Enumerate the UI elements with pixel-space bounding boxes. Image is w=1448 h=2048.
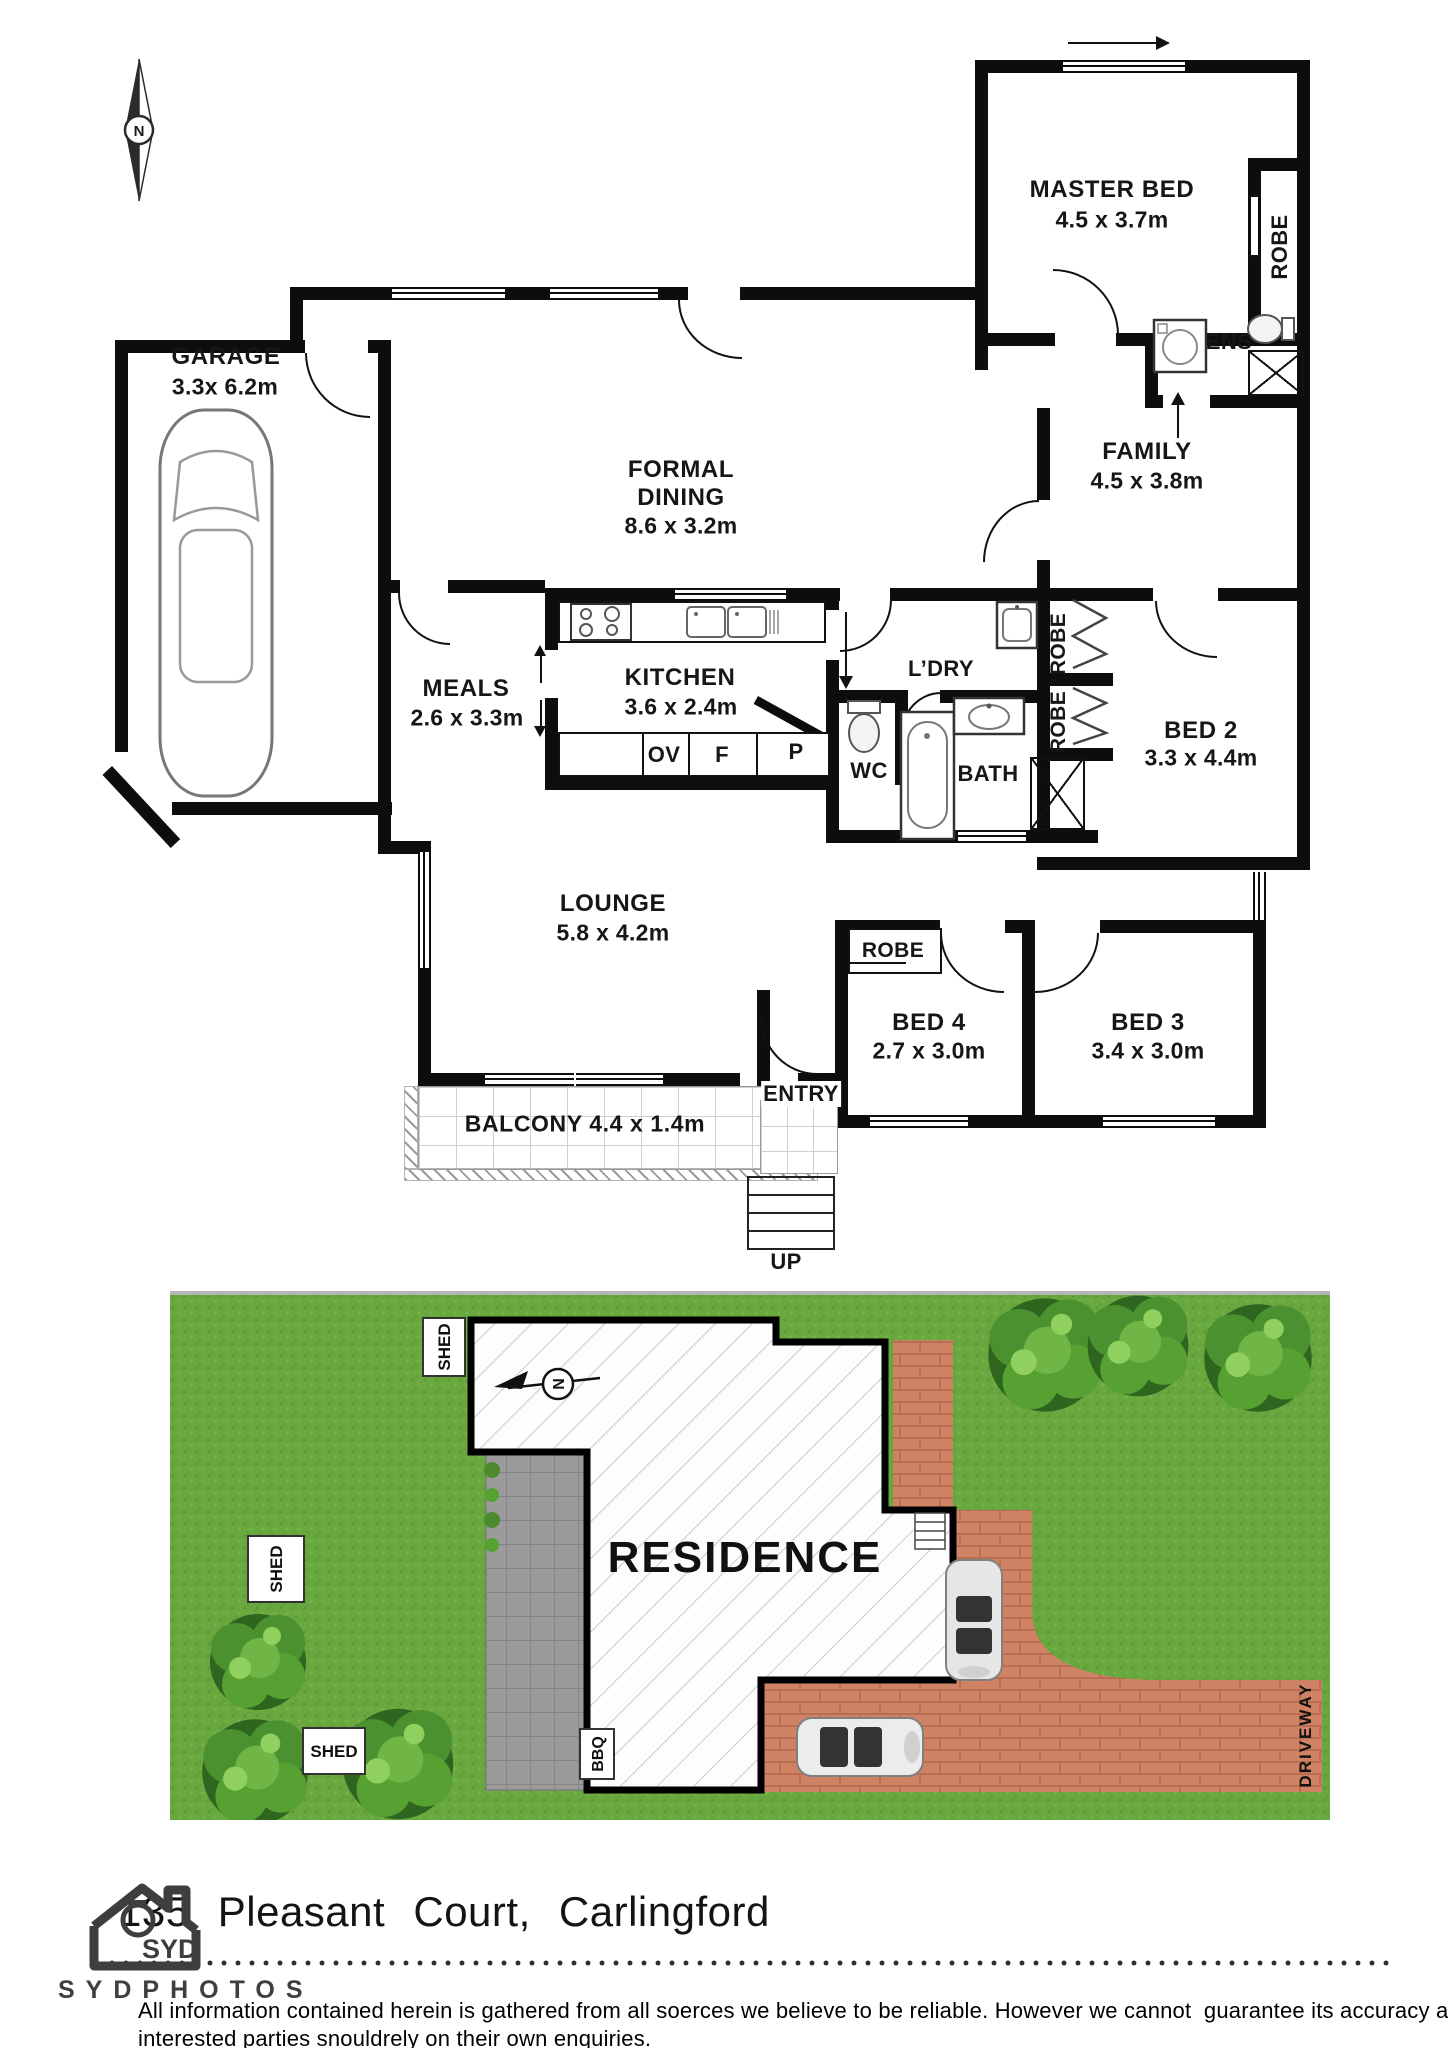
room-dims-master-bed: 4.5 x 3.7m (1056, 207, 1169, 234)
window (392, 287, 505, 300)
robe-rail-icon (1070, 686, 1112, 746)
room-label-balcony: BALCONY 4.4 x 1.4m (465, 1111, 705, 1138)
bbq-label: BBQ (590, 1736, 607, 1772)
wall (1253, 920, 1266, 1128)
wall (835, 1115, 870, 1128)
room-label-bed4: BED 4 (892, 1009, 966, 1037)
bench-divider (756, 732, 758, 777)
door-arc (840, 600, 892, 652)
room-dims-family: 4.5 x 3.8m (1091, 468, 1204, 495)
arrow-up-icon (534, 645, 546, 656)
residence-label: RESIDENCE (608, 1533, 883, 1582)
wall (1100, 920, 1253, 933)
wall (545, 588, 675, 601)
tree (210, 1614, 306, 1710)
wall (1037, 857, 1310, 870)
shed-bottom-label: SHED (310, 1742, 357, 1761)
label-robe-bed4: ROBE (862, 939, 924, 963)
bush (484, 1462, 500, 1478)
room-dims-meals: 2.6 x 3.3m (411, 705, 524, 732)
sydphotos-logo-icon: SYD (80, 1874, 240, 1974)
wall (448, 580, 545, 593)
wall (418, 841, 431, 852)
wall (1218, 588, 1310, 601)
tree (988, 1298, 1101, 1411)
robe-rail-icon (1070, 598, 1112, 670)
label-robe-upper: ROBE (1047, 613, 1071, 675)
label-entry: ENTRY (761, 1081, 841, 1107)
balcony-edge-hatch (404, 1086, 418, 1170)
wall (1183, 60, 1310, 73)
shed-left-label: SHED (267, 1545, 286, 1592)
wall (968, 1115, 1103, 1128)
oven-label: OV (648, 742, 681, 768)
floorplan-page: N (0, 0, 1448, 2048)
window (576, 1073, 663, 1086)
door-arc (398, 593, 450, 645)
label-bath: BATH (957, 761, 1018, 787)
window (418, 852, 431, 968)
tree (1204, 1304, 1312, 1412)
label-ldry: L’DRY (908, 656, 974, 682)
wall (115, 340, 128, 752)
wall (975, 60, 1070, 73)
wall (1022, 920, 1035, 1128)
shower-icon (1152, 318, 1208, 374)
door-arc (983, 500, 1039, 562)
wall (663, 1073, 740, 1086)
room-dims-kitchen: 3.6 x 2.4m (625, 694, 738, 721)
bench-divider (688, 732, 690, 777)
room-dims-lounge: 5.8 x 4.2m (557, 920, 670, 947)
logo-camera-lens (123, 1905, 153, 1935)
door-arc (1035, 933, 1099, 993)
door-arc (1053, 269, 1119, 335)
car-icon (150, 398, 282, 808)
room-dims-garage: 3.3x 6.2m (172, 374, 278, 401)
site-compass-n: N (551, 1378, 568, 1390)
room-label-meals: MEALS (423, 675, 510, 703)
window (1063, 60, 1185, 73)
arrow-line (1177, 404, 1179, 438)
arrow-line (540, 655, 542, 683)
room-dims-dining: 8.6 x 3.2m (625, 513, 738, 540)
linen-cupboard (1030, 757, 1085, 830)
window (1103, 1115, 1215, 1128)
logo-camera-top (130, 1900, 146, 1907)
wall (545, 588, 558, 650)
north-compass-icon: N (110, 56, 170, 206)
label-robe-master: ROBE (1267, 214, 1293, 279)
tree (1088, 1296, 1189, 1397)
wall (290, 287, 392, 300)
bush (484, 1512, 500, 1528)
bush (485, 1538, 499, 1552)
window (675, 588, 786, 601)
wall (786, 588, 830, 601)
wall (975, 60, 988, 370)
cooktop-icon (570, 603, 632, 641)
driveway-label: DRIVEWAY (1296, 1682, 1315, 1787)
room-label-dining-2: DINING (637, 484, 725, 512)
laundry-tub-icon (995, 600, 1039, 652)
wall (1113, 588, 1153, 601)
room-label-family: FAMILY (1102, 438, 1191, 466)
wall (505, 287, 550, 300)
wall (1248, 158, 1310, 171)
room-dims-bed2: 3.3 x 4.4m (1145, 745, 1258, 772)
window (550, 287, 658, 300)
side-paving (486, 1452, 587, 1790)
bush (485, 1488, 499, 1502)
sink-icon (684, 602, 784, 642)
disclaimer-line-2: interested parties snouldrely on their o… (138, 2026, 651, 2048)
room-label-bed3: BED 3 (1111, 1009, 1185, 1037)
compass-n-label: N (134, 123, 145, 140)
car-icon (797, 1718, 923, 1776)
room-dims-bed4: 2.7 x 3.0m (873, 1038, 986, 1065)
linen-cupboard (1248, 350, 1304, 396)
entry-porch-floor (760, 1100, 838, 1174)
wall (1145, 395, 1163, 408)
stairs (747, 1176, 835, 1250)
door-arc (940, 933, 1004, 993)
pantry-label: P (788, 739, 803, 765)
label-up: UP (770, 1249, 801, 1275)
street-name: Pleasant Court, Carlingford (218, 1888, 770, 1935)
wall (975, 333, 1055, 346)
window (870, 1115, 968, 1128)
door-arc (1155, 601, 1217, 658)
arrow-line (845, 612, 847, 678)
wall (378, 340, 391, 815)
wall (545, 777, 830, 790)
dotted-divider (105, 1960, 1390, 1966)
label-wc: WC (850, 758, 887, 784)
wall (418, 968, 431, 1086)
wall (658, 287, 688, 300)
wall (390, 580, 400, 593)
driveway-path (893, 1340, 953, 1511)
arrow-right-icon (1156, 36, 1170, 50)
disclaimer-line-1: All information contained herein is gath… (138, 1998, 1448, 2024)
tree (202, 1719, 308, 1820)
wall (1037, 408, 1050, 500)
wall (1037, 560, 1050, 601)
wall (1210, 395, 1310, 408)
door-arc (678, 300, 742, 359)
arrow-up-icon (1171, 392, 1185, 405)
arrow-line (1068, 42, 1156, 44)
door-arc (305, 353, 370, 418)
wall (830, 588, 840, 601)
site-plan: RESIDENCE SHED SHED SHED (170, 1280, 1330, 1820)
window (485, 1073, 574, 1086)
wall (1297, 60, 1310, 870)
room-label-kitchen: KITCHEN (625, 664, 736, 692)
sliding-door (1251, 195, 1258, 257)
shed-top-label: SHED (435, 1323, 454, 1370)
fridge-label: F (715, 742, 729, 768)
arrow-down-icon (534, 726, 546, 737)
label-robe-lower: ROBE (1047, 691, 1071, 753)
bench-divider (642, 732, 644, 777)
label-ens: ENS (1206, 329, 1252, 355)
window (958, 830, 1026, 843)
car-icon (946, 1560, 1002, 1680)
wall (1215, 1115, 1266, 1128)
logo-syd-text: SYD (142, 1934, 198, 1964)
basin-icon (952, 696, 1026, 738)
room-dims-bed3: 3.4 x 3.0m (1092, 1038, 1205, 1065)
arrow-line (540, 700, 542, 728)
room-label-lounge: LOUNGE (560, 890, 666, 918)
toilet-icon (840, 698, 888, 758)
room-label-master-bed: MASTER BED (1030, 176, 1195, 204)
wall (740, 287, 975, 300)
room-label-dining-1: FORMAL (628, 456, 734, 484)
room-label-garage: GARAGE (172, 343, 281, 371)
arrow-down-icon (839, 676, 853, 689)
bathtub-icon (899, 710, 957, 842)
room-label-bed2: BED 2 (1164, 717, 1238, 745)
window (1253, 872, 1266, 920)
